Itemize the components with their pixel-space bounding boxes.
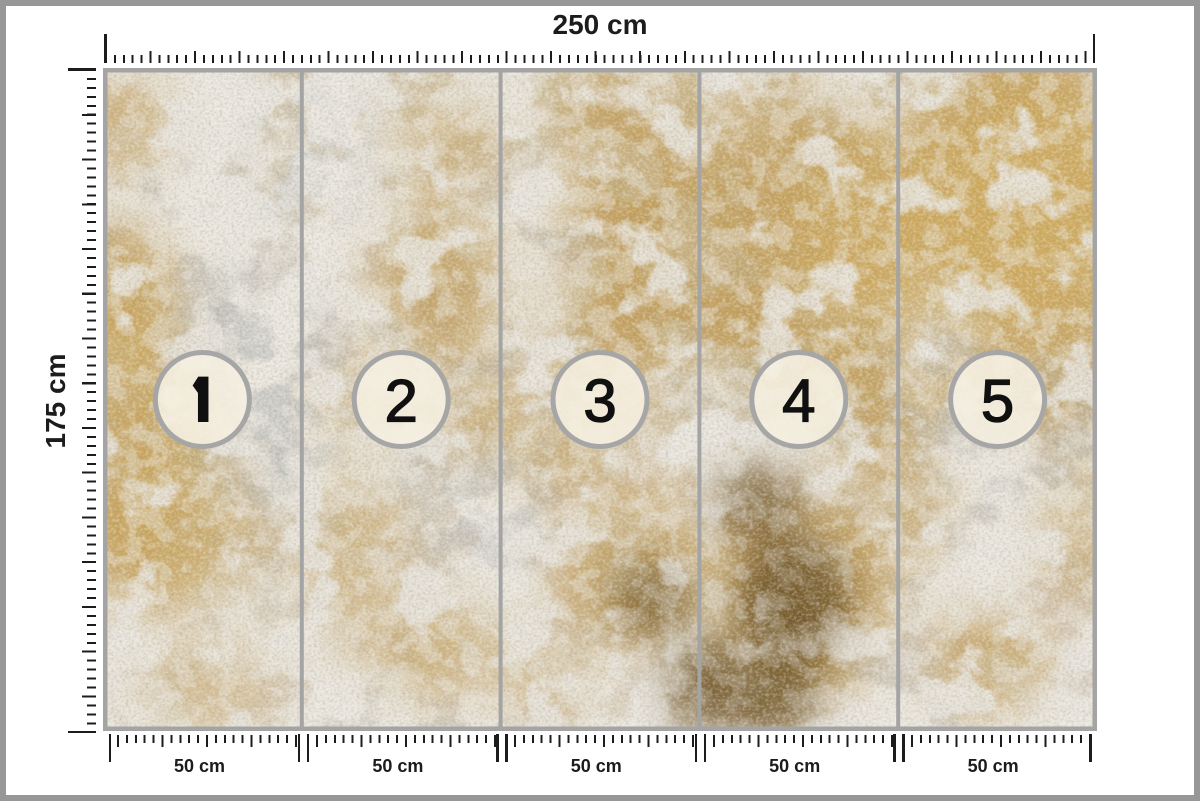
svg-text:2: 2 [385,367,418,434]
svg-text:5: 5 [981,367,1014,434]
svg-text:4: 4 [782,367,815,434]
svg-text:3: 3 [583,367,616,434]
